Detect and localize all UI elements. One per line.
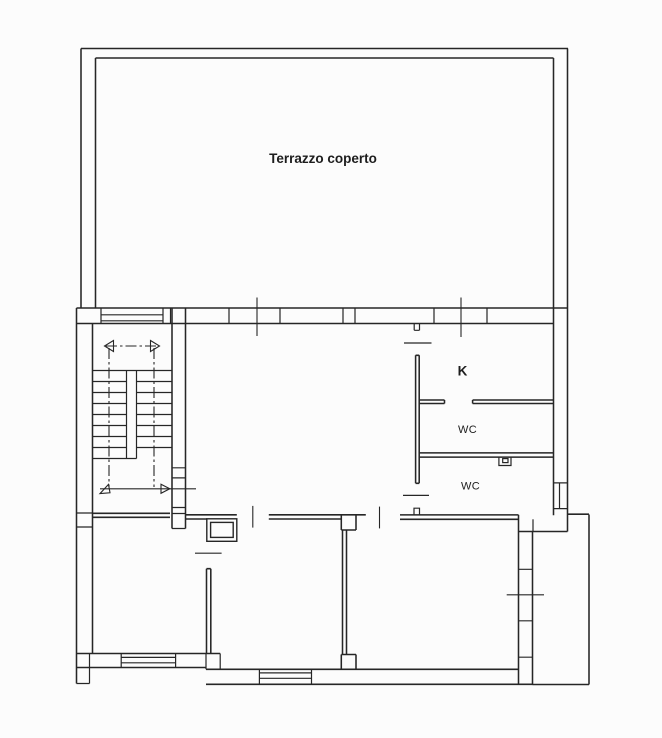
svg-text:WC: WC — [461, 481, 480, 493]
svg-text:K: K — [458, 364, 468, 379]
svg-text:Terrazzo coperto: Terrazzo coperto — [269, 151, 377, 166]
svg-text:WC: WC — [458, 424, 477, 436]
